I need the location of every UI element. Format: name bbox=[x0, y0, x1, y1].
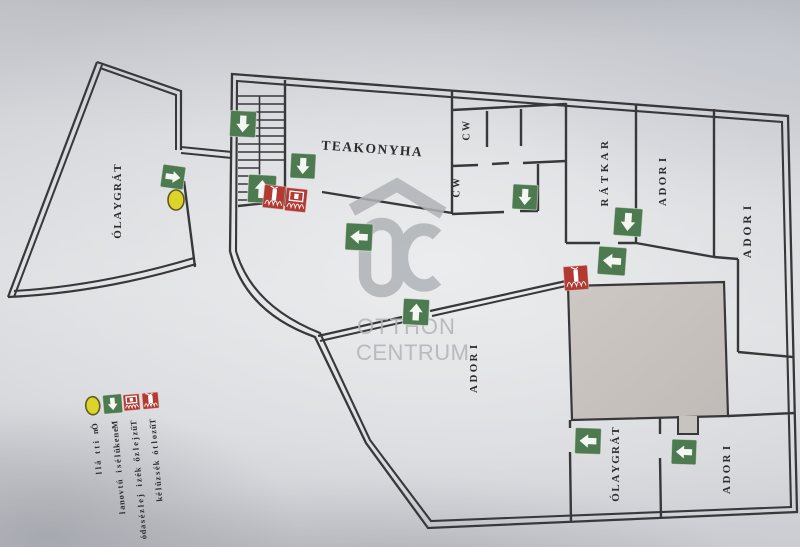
svg-text:j: j bbox=[130, 437, 140, 442]
exit-arrow-down bbox=[613, 207, 643, 237]
svg-text:I: I bbox=[657, 158, 669, 162]
svg-text:z: z bbox=[152, 476, 162, 481]
svg-text:i: i bbox=[134, 483, 144, 487]
legend-fire-alarm-icon bbox=[123, 394, 140, 411]
svg-text:Y: Y bbox=[610, 465, 622, 473]
room-label-teakonyha: TEAKONYHA bbox=[321, 137, 424, 159]
svg-text:o: o bbox=[116, 495, 126, 500]
svg-text:ő: ő bbox=[131, 457, 141, 462]
svg-text:O: O bbox=[468, 363, 480, 372]
legend-item: Tűzjelzőkézijelzésadó bbox=[123, 394, 152, 540]
legend-item: Menekülésiútvonal bbox=[102, 394, 131, 515]
svg-text:k: k bbox=[132, 467, 142, 473]
legend-label: Menekülésiútvonal bbox=[109, 420, 127, 514]
svg-text:A: A bbox=[610, 474, 622, 482]
legend-label: Tűzjelzőkézijelzésadó bbox=[128, 420, 148, 540]
svg-text:o: o bbox=[149, 435, 159, 440]
room-label-iroda-center: IRODA bbox=[468, 345, 480, 393]
exit-arrow-down bbox=[290, 153, 316, 179]
room-label-targyalo-west: TÁRGYALÓ bbox=[112, 164, 124, 239]
svg-text:é: é bbox=[136, 514, 146, 519]
exit-arrow-right bbox=[160, 164, 186, 190]
svg-text:Ó: Ó bbox=[112, 230, 124, 239]
svg-text:Á: Á bbox=[599, 187, 611, 195]
svg-text:T: T bbox=[147, 418, 157, 425]
exit-arrow-left bbox=[575, 428, 602, 455]
svg-text:t: t bbox=[115, 485, 125, 489]
svg-text:é: é bbox=[154, 492, 164, 497]
svg-text:A: A bbox=[742, 249, 754, 258]
svg-text:e: e bbox=[130, 441, 140, 446]
svg-text:i: i bbox=[113, 469, 123, 473]
svg-text:ú: ú bbox=[114, 479, 124, 485]
exit-arrow-down bbox=[512, 184, 538, 210]
svg-text:R: R bbox=[721, 453, 733, 462]
svg-text:T: T bbox=[128, 420, 138, 427]
exit-arrow-down bbox=[229, 110, 256, 137]
svg-text:R: R bbox=[742, 215, 754, 224]
svg-text:A: A bbox=[721, 486, 733, 494]
escape-plan-photo: OTTHON CENTRUM TEAKONYHA TÁRGYALÓWCWCRAK… bbox=[0, 0, 800, 547]
svg-text:I: I bbox=[721, 446, 733, 450]
svg-text:Á: Á bbox=[610, 436, 622, 444]
svg-text:A: A bbox=[657, 198, 669, 206]
svg-text:R: R bbox=[657, 165, 669, 174]
room-label-iroda-top: IRODA bbox=[657, 158, 669, 206]
room-label-iroda-east: IRODA bbox=[742, 205, 754, 258]
svg-text:W: W bbox=[452, 178, 463, 188]
svg-text:e: e bbox=[135, 498, 145, 503]
svg-text:v: v bbox=[115, 489, 125, 495]
svg-text:L: L bbox=[112, 221, 124, 228]
svg-text:ó: ó bbox=[150, 450, 160, 455]
legend-you-are-here-marker bbox=[85, 396, 101, 415]
svg-text:l: l bbox=[117, 511, 127, 515]
svg-text:I: I bbox=[468, 345, 480, 349]
svg-text:W: W bbox=[462, 121, 473, 131]
svg-text:A: A bbox=[112, 211, 124, 219]
svg-text:O: O bbox=[742, 226, 754, 235]
legend-label: Önittáll bbox=[89, 423, 103, 475]
watermark-word-2: CENTRUM bbox=[356, 340, 470, 365]
monogram-c bbox=[402, 229, 437, 285]
svg-text:G: G bbox=[610, 455, 622, 464]
svg-text:D: D bbox=[742, 238, 754, 246]
legend-item: Tűzoltókészülék bbox=[142, 392, 167, 502]
svg-text:G: G bbox=[112, 192, 124, 201]
fire-extinguisher-icon bbox=[563, 265, 589, 291]
svg-text:t: t bbox=[150, 445, 160, 449]
svg-text:é: é bbox=[113, 459, 123, 464]
svg-text:Ó: Ó bbox=[610, 493, 622, 502]
svg-text:R: R bbox=[468, 352, 480, 361]
legend-item: Önittáll bbox=[85, 396, 106, 475]
svg-text:ó: ó bbox=[138, 535, 148, 540]
svg-text:T: T bbox=[112, 164, 124, 172]
svg-text:I: I bbox=[742, 205, 754, 210]
svg-text:k: k bbox=[151, 460, 161, 466]
svg-text:D: D bbox=[721, 475, 733, 483]
fire-alarm-icon bbox=[284, 187, 307, 212]
svg-text:Á: Á bbox=[112, 173, 124, 181]
room-label-raktar: RAKTÁR bbox=[599, 140, 611, 207]
svg-text:l: l bbox=[93, 466, 103, 470]
room-label-iroda-south: IRODA bbox=[721, 446, 733, 494]
room-label-wc-upper: WC bbox=[462, 121, 473, 141]
legend: ÖnittállMenekülésiútvonalTűzjelzőkézijel… bbox=[85, 391, 171, 544]
svg-text:R: R bbox=[599, 197, 611, 206]
svg-text:z: z bbox=[133, 478, 143, 483]
svg-text:D: D bbox=[468, 374, 480, 382]
svg-text:i: i bbox=[91, 440, 101, 444]
svg-text:z: z bbox=[131, 452, 141, 457]
svg-text:R: R bbox=[610, 445, 622, 454]
svg-text:R: R bbox=[112, 182, 124, 191]
exit-arrow-left bbox=[671, 439, 697, 465]
room-label-targyalo-south: TÁRGYALÓ bbox=[610, 427, 622, 502]
svg-text:O: O bbox=[721, 464, 733, 473]
exit-arrow-up bbox=[402, 298, 429, 325]
legend-escape-route-arrow bbox=[102, 394, 123, 415]
roof-icon bbox=[352, 185, 443, 213]
exit-arrow-left bbox=[345, 223, 373, 251]
svg-text:l: l bbox=[131, 447, 141, 451]
svg-text:L: L bbox=[610, 484, 622, 491]
legend-fire-extinguisher-icon bbox=[142, 392, 159, 409]
svg-text:á: á bbox=[93, 460, 103, 466]
svg-text:j: j bbox=[135, 494, 145, 499]
svg-text:C: C bbox=[452, 190, 463, 197]
svg-text:T: T bbox=[599, 175, 611, 183]
svg-text:T: T bbox=[610, 427, 622, 435]
svg-text:C: C bbox=[462, 133, 473, 140]
svg-text:A: A bbox=[599, 152, 611, 160]
exit-arrow-left bbox=[597, 246, 627, 276]
svg-text:l: l bbox=[136, 504, 146, 508]
svg-text:l: l bbox=[94, 471, 104, 475]
svg-text:K: K bbox=[599, 163, 611, 172]
shaded-room-notch bbox=[678, 416, 698, 434]
shaded-room bbox=[568, 282, 728, 434]
room-label-wc-lower: WC bbox=[452, 178, 463, 198]
svg-text:R: R bbox=[599, 140, 611, 149]
svg-text:z: z bbox=[136, 509, 146, 514]
svg-text:D: D bbox=[657, 187, 669, 195]
svg-text:t: t bbox=[92, 451, 102, 455]
svg-text:O: O bbox=[657, 176, 669, 185]
floor-plan: OTTHON CENTRUM TEAKONYHA TÁRGYALÓWCWCRAK… bbox=[0, 0, 800, 547]
svg-text:A: A bbox=[468, 385, 480, 393]
fire-extinguisher-icon bbox=[262, 184, 285, 209]
svg-text:Y: Y bbox=[112, 202, 124, 210]
you-are-here-marker bbox=[168, 190, 184, 210]
svg-text:t: t bbox=[91, 445, 101, 449]
svg-text:l: l bbox=[149, 440, 159, 444]
legend-label: Tűzoltókészülék bbox=[147, 418, 164, 502]
